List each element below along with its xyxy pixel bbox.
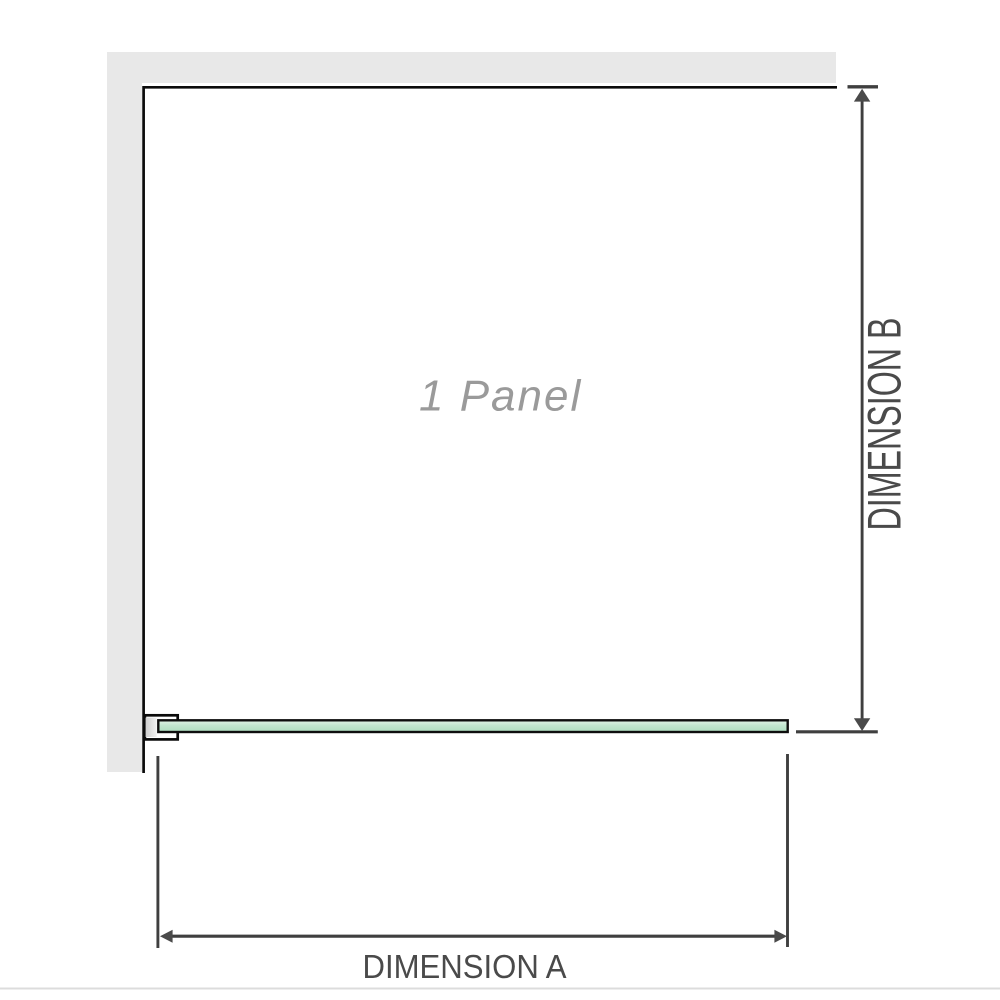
svg-text:DIMENSION B: DIMENSION B [857,318,910,531]
svg-text:1 Panel: 1 Panel [419,372,582,421]
svg-text:DIMENSION A: DIMENSION A [363,948,567,985]
